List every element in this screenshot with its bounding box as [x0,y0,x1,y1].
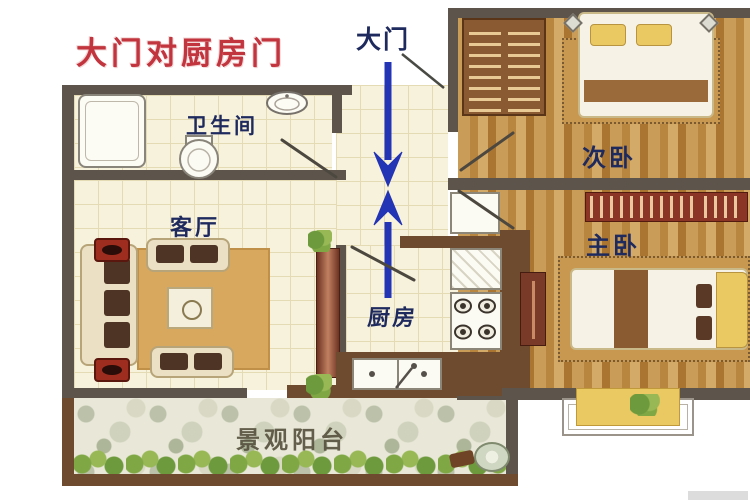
plant-icon [308,230,332,252]
pillow-dark [696,316,712,340]
stove [450,292,502,350]
pillow [636,24,672,46]
plant-icon [630,394,660,416]
double-sink [352,358,442,390]
wardrobe-master-bedroom [585,192,748,222]
wall-living-balcony [62,388,247,398]
armchair-cushion [156,245,184,263]
pillow [590,24,626,46]
master-bedroom-label: 主卧 [586,226,640,261]
bathtub [78,94,146,168]
watermark-bar [688,491,748,500]
bay-window-seat [576,388,680,426]
entry-pointer-line [402,54,444,88]
wall-bathroom-bottom [62,170,346,180]
sink-divider [397,360,399,388]
wall-kitchen-top [400,236,502,248]
master-bedroom-door-panel [520,272,546,346]
wall-left-upper [62,85,74,390]
bed-blanket [584,80,708,102]
armchair-cushion [194,353,222,370]
coffee-table-decor [182,300,202,320]
kitchen-label: 厨房 [366,300,419,332]
living-room-label: 客厅 [170,210,220,242]
bed-master-bedroom [570,268,748,350]
side-table-bottom [94,358,130,382]
hanger-rail [508,24,540,112]
armchair-top [146,238,230,272]
armchair-cushion [160,353,188,370]
wall-left-lower [62,388,74,486]
pillow-dark [696,284,712,308]
wall-bathroom-right-stub [332,85,342,133]
floor-plan-image: 大门对厨房门 大门 [0,0,750,500]
armchair-bottom [150,346,234,378]
wardrobe-second-bedroom [462,18,546,116]
wall-balcony-bottom [62,474,518,486]
plant-icon [306,374,332,398]
annotation-title: 大门对厨房门 [76,28,286,73]
bed-headboard [716,272,748,348]
stone-table [474,442,510,472]
wall-balcony-right [506,388,518,486]
hall-cabinet [450,192,500,234]
wall-second-bedroom-left [448,8,458,132]
balcony-label: 景观阳台 [236,420,348,455]
coffee-table [167,287,213,329]
bed-blanket [614,270,648,348]
bathtub-inner-rim [85,101,139,161]
door-panel-groove [532,281,535,339]
hanger-rail [590,196,694,218]
hanger-rail [469,24,501,112]
armchair-cushion [190,245,218,263]
wall-bedroom-divider [448,178,750,190]
bed-second-bedroom [578,12,714,118]
sofa-cushion [104,322,130,348]
kitchen-counter [450,248,502,290]
sofa [80,244,138,366]
sofa-cushion [104,290,130,316]
side-table-top [94,238,130,262]
bathroom-label: 卫生间 [186,110,258,140]
hanger-rail [704,196,744,218]
second-bedroom-label: 次卧 [582,138,636,173]
entry-corridor-floor [336,85,448,248]
entry-door-label: 大门 [356,20,410,56]
